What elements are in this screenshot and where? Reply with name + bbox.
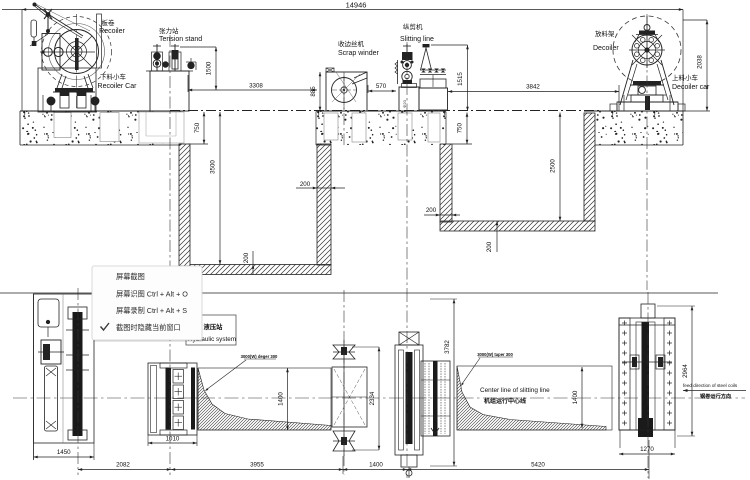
svg-text:200: 200 <box>300 181 311 188</box>
svg-text:3782: 3782 <box>444 340 451 354</box>
svg-text:2500: 2500 <box>550 159 557 173</box>
svg-text:feed direction of steel coils: feed direction of steel coils <box>683 383 738 388</box>
svg-text:3308: 3308 <box>249 83 263 90</box>
svg-text:1400: 1400 <box>369 462 383 469</box>
svg-text:1500: 1500 <box>206 61 213 75</box>
svg-text:750: 750 <box>457 123 464 134</box>
svg-text:机组运行中心线: 机组运行中心线 <box>484 397 526 405</box>
svg-text:下料小车: 下料小车 <box>100 72 127 81</box>
svg-text:2964: 2964 <box>682 364 689 378</box>
svg-text:3000(W) taper 300: 3000(W) taper 300 <box>477 352 513 357</box>
svg-text:Tension stand: Tension stand <box>159 36 202 43</box>
svg-text:Recoiler Car: Recoiler Car <box>98 83 138 90</box>
svg-text:屏幕识图 Ctrl + Alt + O: 屏幕识图 Ctrl + Alt + O <box>116 290 188 299</box>
svg-text:1400: 1400 <box>572 390 579 404</box>
svg-text:200: 200 <box>243 252 250 263</box>
svg-text:上料小车: 上料小车 <box>672 73 699 82</box>
svg-text:1270: 1270 <box>640 446 654 453</box>
svg-text:5420: 5420 <box>531 462 545 469</box>
svg-text:液压站: 液压站 <box>204 322 224 331</box>
svg-text:收边丝机: 收边丝机 <box>338 39 365 48</box>
svg-text:200: 200 <box>486 241 493 252</box>
svg-text:Φ20: Φ20 <box>402 99 407 107</box>
svg-text:屏幕截图: 屏幕截图 <box>116 272 145 281</box>
svg-text:2334: 2334 <box>369 391 376 405</box>
svg-text:板卷: 板卷 <box>102 18 116 27</box>
svg-text:截图时隐藏当前窗口: 截图时隐藏当前窗口 <box>116 323 181 332</box>
svg-text:1010: 1010 <box>166 436 180 443</box>
svg-text:放料架: 放料架 <box>595 29 615 38</box>
svg-text:2038: 2038 <box>697 55 704 69</box>
svg-text:2082: 2082 <box>116 462 130 469</box>
svg-text:1515: 1515 <box>457 72 464 86</box>
svg-text:钢卷运行方向: 钢卷运行方向 <box>700 392 731 400</box>
svg-text:1450: 1450 <box>57 449 71 456</box>
svg-text:3500: 3500 <box>210 160 217 174</box>
svg-text:3955: 3955 <box>250 462 264 469</box>
svg-text:Slitting line: Slitting line <box>400 36 434 43</box>
svg-text:张力站: 张力站 <box>159 26 179 35</box>
svg-text:纵剪机: 纵剪机 <box>403 22 423 31</box>
svg-text:200: 200 <box>426 207 437 214</box>
svg-text:885: 885 <box>310 86 317 97</box>
svg-text:3000(W) deger 300: 3000(W) deger 300 <box>241 354 278 359</box>
svg-text:14946: 14946 <box>346 1 367 10</box>
svg-text:Decoiler: Decoiler <box>593 45 619 52</box>
svg-text:Scrap winder: Scrap winder <box>338 50 380 57</box>
svg-text:Recoiler: Recoiler <box>99 28 125 35</box>
svg-text:570: 570 <box>376 83 387 90</box>
svg-text:750: 750 <box>194 122 201 133</box>
svg-text:Decoiler car: Decoiler car <box>672 84 710 91</box>
svg-text:屏幕录制 Ctrl + Alt + S: 屏幕录制 Ctrl + Alt + S <box>116 306 187 315</box>
svg-text:Center line of slitting line: Center line of slitting line <box>480 387 550 394</box>
svg-text:1400: 1400 <box>278 392 285 406</box>
svg-text:3842: 3842 <box>526 84 540 91</box>
